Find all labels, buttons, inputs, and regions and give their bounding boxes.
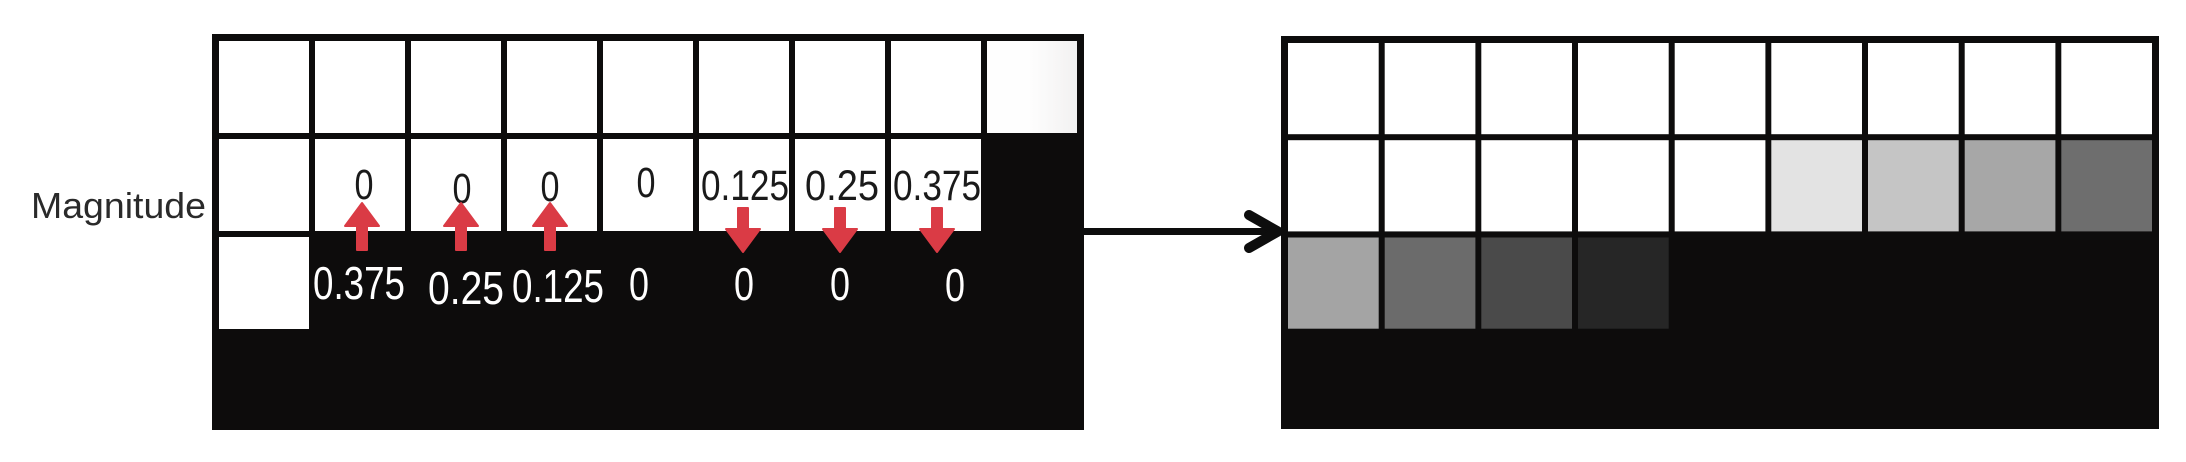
svg-text:0.375: 0.375 (313, 257, 405, 309)
svg-text:0.125: 0.125 (701, 162, 789, 210)
svg-text:0: 0 (734, 258, 754, 310)
svg-text:0: 0 (637, 159, 656, 207)
svg-text:0.125: 0.125 (512, 260, 604, 312)
svg-text:0: 0 (830, 258, 850, 310)
svg-text:Magnitude: Magnitude (31, 185, 206, 226)
svg-text:0.25: 0.25 (805, 162, 879, 210)
svg-text:0: 0 (355, 161, 374, 209)
svg-text:0: 0 (945, 259, 965, 311)
svg-text:0.375: 0.375 (893, 162, 981, 210)
svg-text:0.25: 0.25 (428, 262, 504, 314)
svg-text:0: 0 (629, 258, 649, 310)
